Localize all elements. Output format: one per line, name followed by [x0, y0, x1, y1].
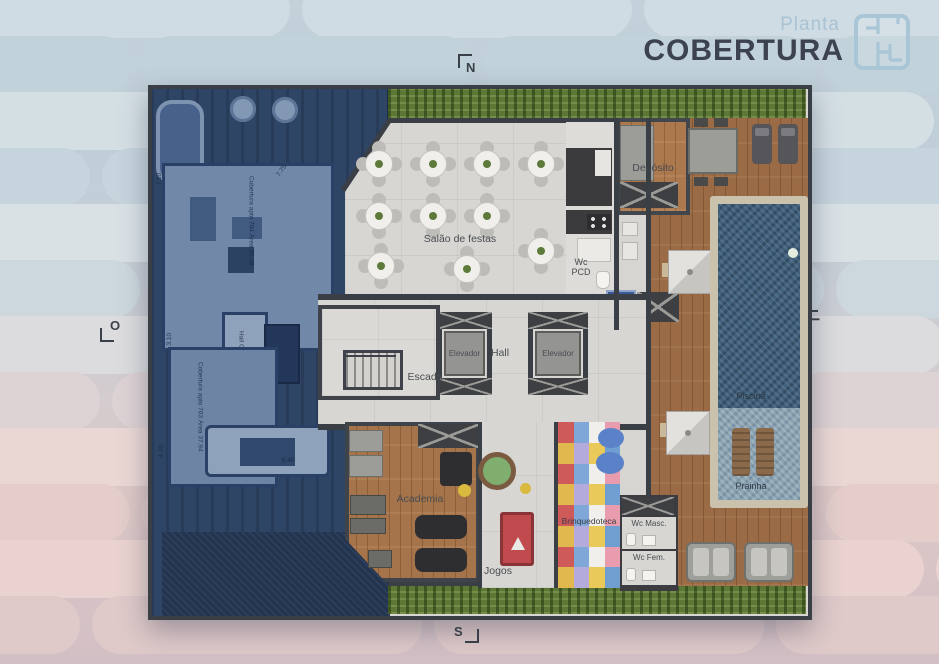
wc-pcd-toilet [596, 271, 610, 289]
elevator-right-rail-r [583, 329, 588, 378]
play-mat-tile [558, 547, 574, 568]
dim-7-10: 7.10 [156, 173, 164, 186]
room-label-escada: Escada [395, 371, 455, 383]
room-label-prainha: Prainha [710, 481, 792, 491]
pool-water [718, 204, 800, 408]
dim-4-70: 4.70 [158, 445, 166, 458]
banquet-table [473, 150, 501, 178]
play-mat-tile [574, 567, 590, 588]
academia-cabinet [418, 424, 480, 448]
spa-tub [478, 452, 516, 490]
play-mat-tile [574, 443, 590, 464]
play-mat-tile [605, 567, 621, 588]
room-label-academia: Academia [380, 493, 460, 505]
play-mat-tile [558, 526, 574, 547]
background-wave-pill [0, 0, 290, 38]
dim-6-40: 6.40 [282, 457, 295, 465]
treadmill-2 [415, 548, 467, 572]
play-mat-tile [574, 484, 590, 505]
play-mat-tile [589, 526, 605, 547]
elevator-right-cab: Elevador [535, 331, 581, 376]
wc-fem-toilet [626, 568, 636, 581]
background-wave-pill [0, 148, 90, 206]
wall-academia-jogos [478, 422, 482, 588]
room-label-wc-fem: Wc Fem. [622, 553, 676, 562]
room-label-piscina: Piscina [710, 391, 792, 401]
play-mat-tile [605, 484, 621, 505]
daybed-2 [744, 542, 794, 582]
room-label-deposito: Depósito [616, 162, 690, 174]
play-mat-tile [574, 526, 590, 547]
bean-bag-1 [598, 428, 624, 448]
room-label-wc-pcd: Wc PCD [568, 257, 594, 278]
banquet-table [365, 202, 393, 230]
plan-subtitle: Planta [780, 14, 840, 36]
kitchen-sink [595, 150, 611, 176]
room-label-jogos: Jogos [468, 565, 528, 577]
grill-chair-2 [714, 118, 728, 127]
elevator-right-cap-bottom [528, 378, 588, 395]
cooktop [587, 214, 611, 230]
elevator-right-cap-top [528, 312, 588, 329]
grill-chair-4 [714, 177, 728, 186]
grill-chair-3 [694, 177, 708, 186]
room-label-brinquedoteca: Brinquedoteca [556, 517, 622, 527]
deck-fixture-1 [622, 222, 638, 236]
sun-lounger-top-2 [778, 124, 798, 164]
banquet-table [365, 150, 393, 178]
deck-fixture-2 [622, 242, 638, 260]
plan-wall-bottom [148, 616, 812, 620]
compass-north-label: N [466, 60, 475, 75]
play-mat-tile [589, 567, 605, 588]
plan-title: COBERTURA [643, 34, 844, 68]
compass-west: O [98, 316, 140, 352]
room-label-salao: Salão de festas [400, 233, 520, 245]
elevator-left-cap-top [437, 312, 492, 329]
stairs-handrail [346, 355, 396, 357]
wc-masc-toilet [626, 533, 636, 546]
background-wave-pill [826, 484, 939, 542]
room-label-hall: Hall [478, 347, 522, 359]
play-mat-tile [605, 526, 621, 547]
play-mat-tile [605, 547, 621, 568]
gym-bench-2 [349, 455, 383, 477]
grill-table [688, 128, 738, 174]
room-label-elevador-left: Elevador [449, 349, 481, 358]
banquet-table [527, 150, 555, 178]
umbrella-b-pole [685, 430, 691, 436]
plan-wall-top [148, 85, 812, 89]
background-wave-pill [796, 372, 939, 430]
stool [520, 483, 531, 494]
floor-plan-page: Planta COBERTURA N S O L Cobertu [0, 0, 939, 664]
background-wave-pill [0, 260, 140, 318]
room-label-wc-masc: Wc Masc. [622, 519, 676, 528]
compass-south: S [452, 622, 494, 658]
weight-rack [368, 550, 392, 568]
hall-top-wall [318, 294, 650, 300]
dimmed-round-table-1 [230, 96, 256, 122]
banquet-table [419, 150, 447, 178]
brand-header: Planta COBERTURA [540, 10, 926, 74]
play-mat-tile [558, 443, 574, 464]
plan-wall-left [148, 85, 152, 620]
grill-chair-1 [694, 118, 708, 127]
wall-deck-left [646, 118, 651, 498]
room-label-elevador-right: Elevador [542, 349, 574, 358]
play-mat-tile [558, 484, 574, 505]
dimmed-furniture-1 [190, 197, 216, 241]
background-wave-pill [836, 260, 939, 318]
sun-lounger-top-1 [752, 124, 772, 164]
dimmed-apto-704-label: Cobertura apto 704 Área 55.38 [246, 165, 280, 277]
banquet-table [453, 255, 481, 283]
banquet-table [473, 202, 501, 230]
pool-table-rack [511, 537, 525, 550]
dimmed-round-table-2 [272, 97, 298, 123]
background-wave-pill [0, 484, 130, 542]
in-pool-lounger-2 [756, 428, 774, 476]
play-mat-tile [574, 464, 590, 485]
floorplan-logo-icon [852, 12, 912, 72]
compass-south-bracket [465, 629, 479, 643]
daybed-1 [686, 542, 736, 582]
in-pool-lounger-1 [732, 428, 750, 476]
background-wave-pill [0, 36, 130, 94]
play-mat-tile [558, 422, 574, 443]
treadmill-1 [415, 515, 467, 539]
wall-kitchen-deck [614, 118, 619, 330]
umbrella-a-pole [687, 269, 693, 275]
dumbbell-rack-2 [350, 518, 386, 534]
bean-bag-2 [596, 452, 624, 474]
gym-bench-1 [349, 430, 383, 452]
play-mat-tile [589, 484, 605, 505]
pool-ball [788, 248, 798, 258]
hedge-top [388, 88, 806, 118]
compass-south-label: S [454, 624, 463, 639]
compass-west-label: O [110, 318, 120, 333]
elevator-right-rail-l [528, 329, 533, 378]
play-mat-tile [574, 422, 590, 443]
play-mat-tile [589, 547, 605, 568]
wc-block-closet [622, 497, 674, 515]
play-mat-tile [558, 567, 574, 588]
banquet-table [419, 202, 447, 230]
plan-wall-right [808, 85, 812, 620]
banquet-tables-layer [345, 122, 566, 312]
hedge-bottom [388, 586, 806, 614]
play-mat-tile [558, 464, 574, 485]
wc-masc-sink [642, 535, 656, 546]
floor-plan: Cobertura apto 704 Área 55.38 7.10 7.75 … [148, 85, 812, 620]
compass-north: N [452, 52, 494, 88]
play-mat-tile [574, 547, 590, 568]
banquet-table [527, 237, 555, 265]
background-wave-pill [0, 596, 80, 654]
gym-machine [440, 452, 472, 486]
dim-3-10: 3.10 [166, 333, 174, 346]
background-wave-pill [0, 372, 100, 430]
wc-fem-sink [642, 570, 656, 581]
banquet-table [367, 252, 395, 280]
